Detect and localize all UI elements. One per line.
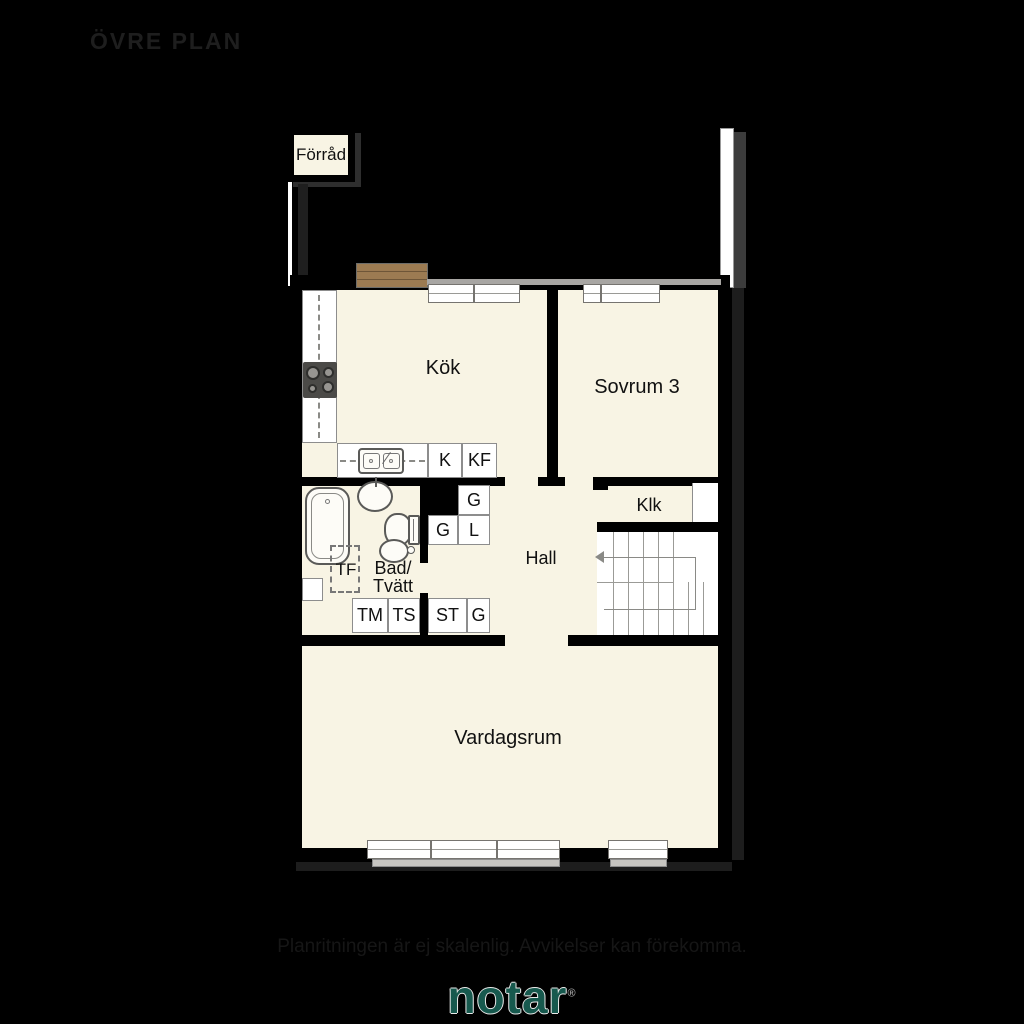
closet-st-label: ST — [436, 605, 459, 626]
closet-l: L — [458, 515, 490, 545]
closet-k: K — [428, 443, 462, 478]
closet-tm: TM — [352, 598, 388, 633]
wall-kok-sovrum — [547, 290, 558, 477]
forrad-label: Förråd — [296, 146, 346, 164]
wall-bath-upper — [420, 515, 428, 563]
closet-ts-label: TS — [392, 605, 415, 626]
window-sill — [372, 859, 560, 867]
window — [428, 284, 520, 303]
stove-icon — [303, 362, 337, 398]
stair-direction-arrow-icon — [595, 551, 604, 563]
hall-label: Hall — [525, 549, 556, 567]
closet-l-label: L — [469, 520, 479, 541]
window — [367, 840, 560, 859]
stair-railing — [604, 557, 696, 610]
entrance-step — [356, 263, 428, 288]
closet-ts: TS — [388, 598, 420, 633]
vardagsrum-label: Vardagsrum — [454, 729, 561, 747]
closet-g-mid: G — [428, 515, 458, 545]
wall-vardagsrum-right — [568, 635, 718, 646]
window-sill — [610, 859, 667, 867]
closet-kf-label: KF — [468, 450, 491, 471]
closet-st: ST — [428, 598, 467, 633]
closet-g-label: G — [467, 490, 481, 511]
bad-label-line1: Bad/ — [374, 558, 411, 578]
wall-segment — [538, 477, 565, 486]
closet-g-hall: G — [467, 598, 490, 633]
registered-mark: ® — [567, 988, 576, 1000]
fence-left — [288, 182, 292, 286]
klk-wardrobe — [692, 483, 718, 522]
window — [608, 840, 668, 859]
plan-title: ÖVRE PLAN — [90, 28, 242, 55]
toilet-tank-icon — [408, 515, 420, 545]
closet-kf: KF — [462, 443, 497, 478]
sovrum3-label: Sovrum 3 — [594, 378, 680, 396]
closet-k-label: K — [439, 450, 451, 471]
wall-block-bath — [420, 485, 458, 515]
notar-logo: notar® — [0, 970, 1024, 1024]
closet-tm-label: TM — [357, 605, 383, 626]
closet-g-label: G — [471, 605, 485, 626]
kitchen-sink-icon — [358, 448, 404, 474]
disclaimer-text: Planritningen är ej skalenlig. Avvikelse… — [0, 936, 1024, 958]
wall-bath-lower — [420, 593, 428, 635]
bathroom-sink-icon — [357, 481, 393, 512]
window — [583, 284, 660, 303]
bath-cabinet — [302, 578, 323, 601]
bidet-control-icon — [407, 546, 415, 554]
floorplan-canvas: ÖVRE PLAN Förråd — [0, 0, 1024, 1024]
bad-label-line2: Tvätt — [373, 576, 413, 596]
fence-left-shadow — [298, 184, 308, 284]
klk-label: Klk — [636, 496, 661, 514]
building-shadow-right — [732, 285, 744, 860]
wall-klk-stairs — [597, 522, 718, 532]
fence-right — [720, 128, 734, 288]
building: K KF G G L TM TS ST G TF — [290, 275, 730, 860]
fence-right-shadow — [734, 132, 746, 288]
kok-label: Kök — [426, 359, 460, 377]
staircase — [597, 532, 718, 635]
wall-vardagsrum-left — [302, 635, 505, 646]
tf-label: TF — [336, 561, 357, 579]
closet-g-label: G — [436, 520, 450, 541]
notar-wordmark: notar — [447, 971, 567, 1023]
bad-tvatt-label: Bad/ Tvätt — [373, 559, 413, 595]
closet-g-upper: G — [458, 485, 490, 515]
wall-stub — [593, 477, 608, 490]
